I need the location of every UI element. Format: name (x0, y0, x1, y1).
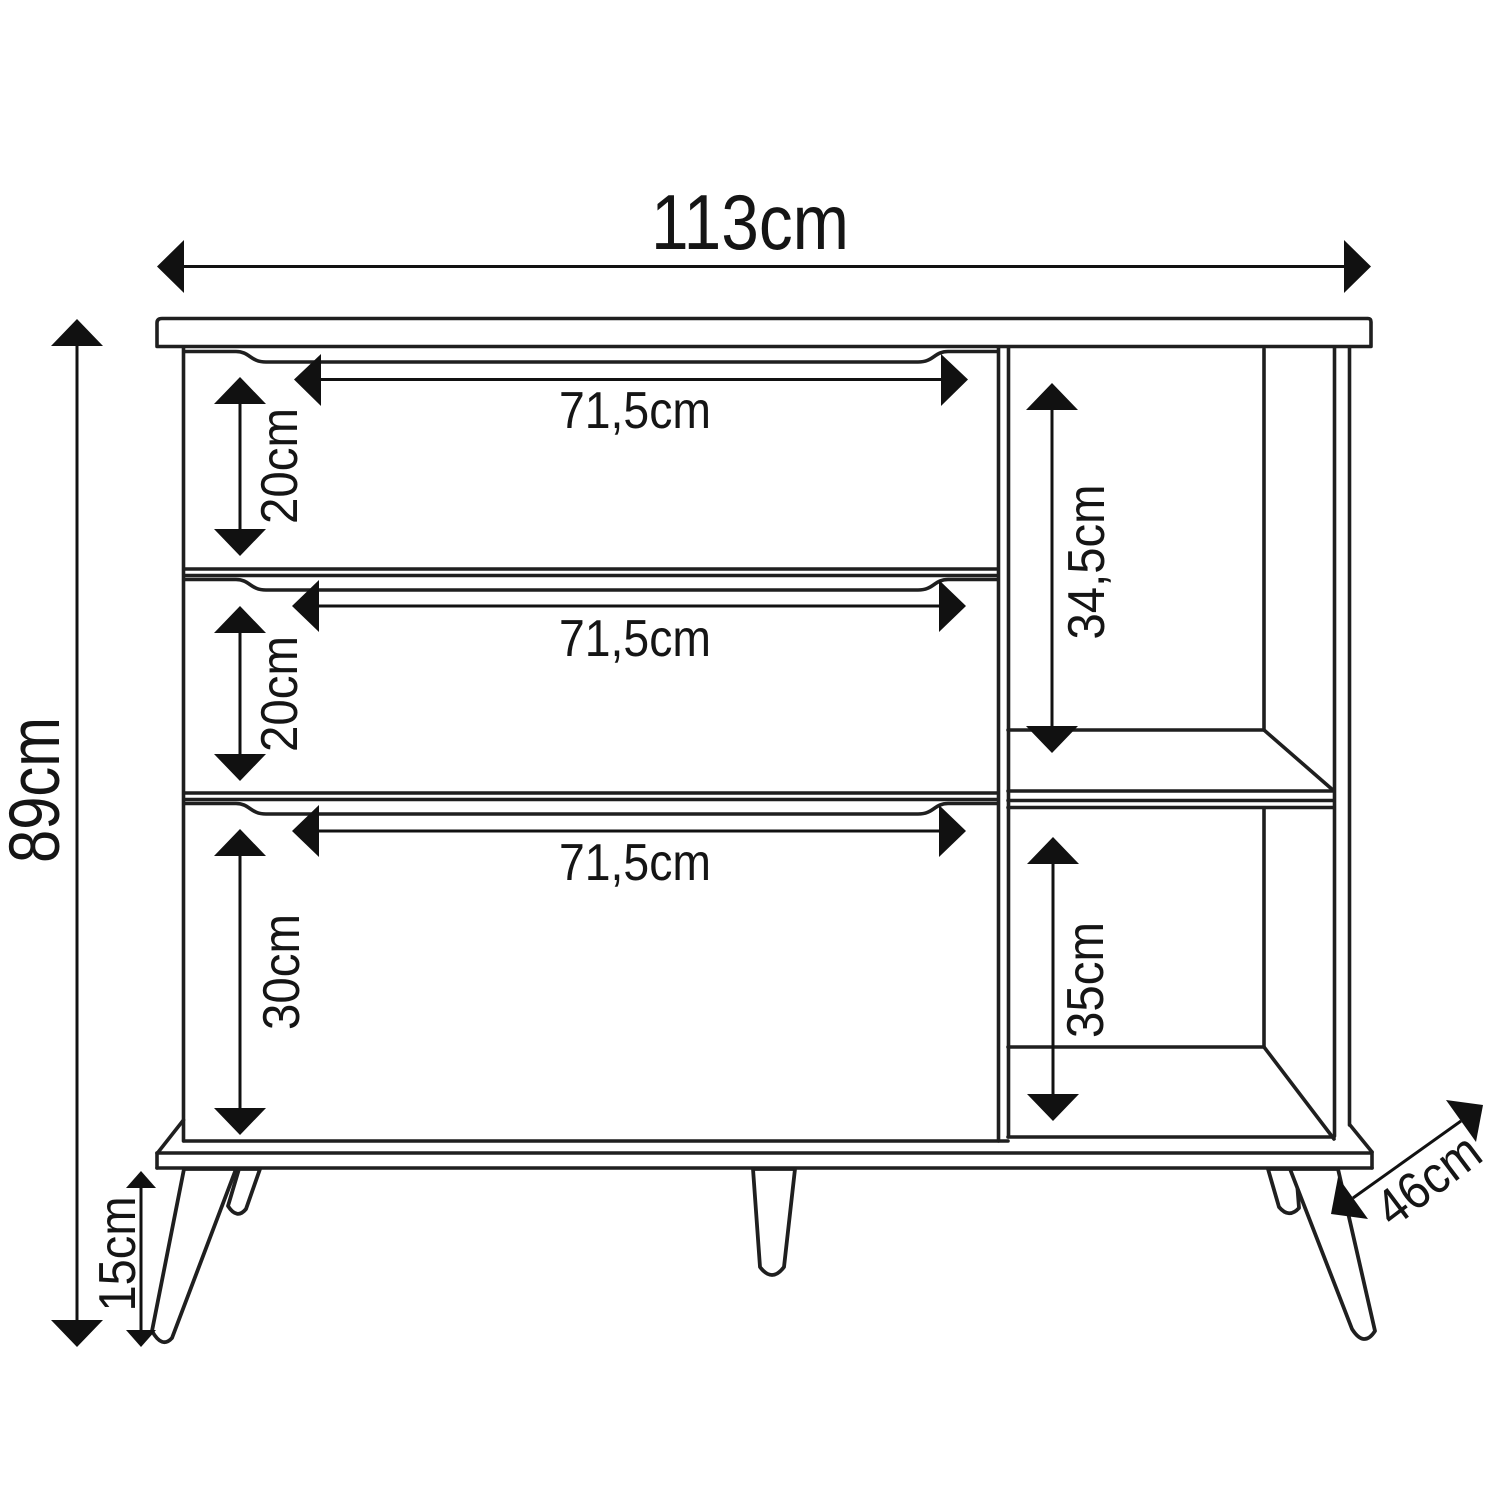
svg-text:20cm: 20cm (251, 636, 309, 752)
svg-text:15cm: 15cm (89, 1197, 147, 1312)
svg-text:35cm: 35cm (1057, 922, 1115, 1038)
svg-text:113cm: 113cm (651, 178, 849, 266)
svg-text:34,5cm: 34,5cm (1058, 485, 1116, 640)
svg-text:71,5cm: 71,5cm (559, 382, 711, 440)
svg-text:71,5cm: 71,5cm (559, 834, 711, 892)
svg-text:20cm: 20cm (251, 408, 309, 524)
svg-text:89cm: 89cm (0, 717, 75, 863)
svg-text:30cm: 30cm (253, 914, 311, 1030)
svg-text:71,5cm: 71,5cm (559, 610, 711, 668)
